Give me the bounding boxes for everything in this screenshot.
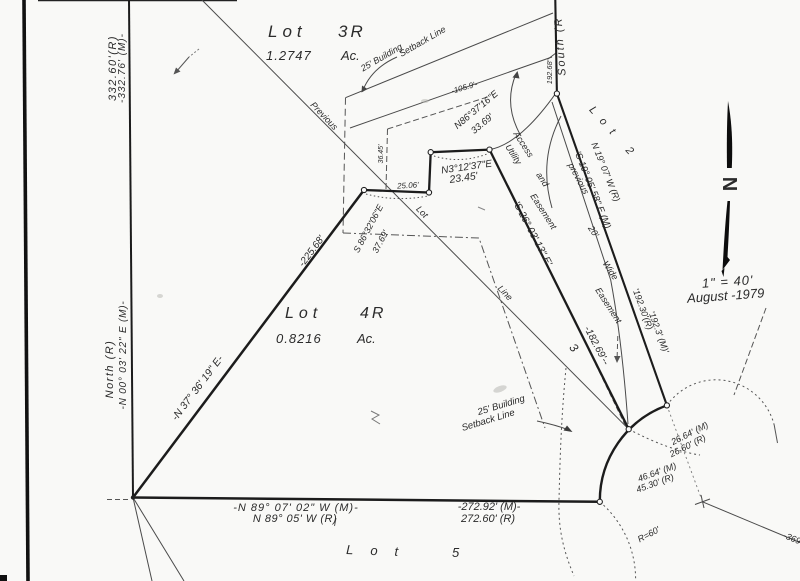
svg-text:Lot: Lot: [268, 22, 307, 41]
svg-text:3R: 3R: [338, 22, 366, 41]
svg-text:36.45': 36.45': [378, 144, 385, 164]
svg-text:'192.3' (M)': '192.3' (M)': [647, 310, 671, 355]
svg-text:-272.92' (M)-: -272.92' (M)-: [458, 501, 521, 513]
svg-text:-369: -369: [782, 530, 800, 546]
svg-text:Setback Line: Setback Line: [397, 24, 447, 59]
svg-text:N: N: [718, 177, 740, 191]
svg-text:North (R): North (R): [104, 340, 116, 399]
svg-text:25.06': 25.06': [396, 180, 419, 190]
svg-text:N 89° 05' W (R): N 89° 05' W (R): [253, 513, 337, 525]
svg-text:1.2747: 1.2747: [266, 48, 312, 63]
svg-text:August -1979: August -1979: [686, 285, 765, 305]
svg-text:Lot: Lot: [346, 542, 416, 559]
svg-text:South (R: South (R: [552, 16, 568, 76]
svg-text:Ac.: Ac.: [356, 331, 376, 346]
svg-text:-182.69'--: -182.69'--: [581, 324, 611, 367]
svg-text:Ac.: Ac.: [340, 48, 360, 63]
svg-text:5: 5: [452, 545, 460, 560]
svg-text:37.69': 37.69': [370, 228, 390, 254]
svg-text:0.8216: 0.8216: [276, 331, 322, 346]
svg-text:Line: Line: [496, 283, 515, 302]
svg-text:-332.76' (M)-: -332.76' (M)-: [117, 33, 128, 103]
svg-text:20': 20': [586, 223, 601, 239]
svg-text:Lot: Lot: [414, 204, 430, 220]
svg-text:272.60' (R): 272.60' (R): [460, 513, 515, 525]
svg-text:-N 00° 03' 22" E (M)-: -N 00° 03' 22" E (M)-: [118, 300, 129, 409]
svg-text:Previous: Previous: [308, 100, 340, 132]
svg-text:192.68': 192.68': [545, 59, 554, 84]
svg-text:and: and: [534, 170, 551, 189]
svg-text:-105.9'-: -105.9'-: [450, 79, 479, 95]
svg-text:3: 3: [566, 341, 581, 355]
svg-text:R=60': R=60': [636, 524, 662, 544]
svg-text:Easement: Easement: [593, 286, 624, 326]
svg-text:-225.68': -225.68': [297, 233, 328, 269]
svg-text:25' Building: 25' Building: [358, 42, 404, 74]
svg-text:4R: 4R: [360, 305, 386, 322]
svg-text:Lot: Lot: [285, 305, 322, 322]
